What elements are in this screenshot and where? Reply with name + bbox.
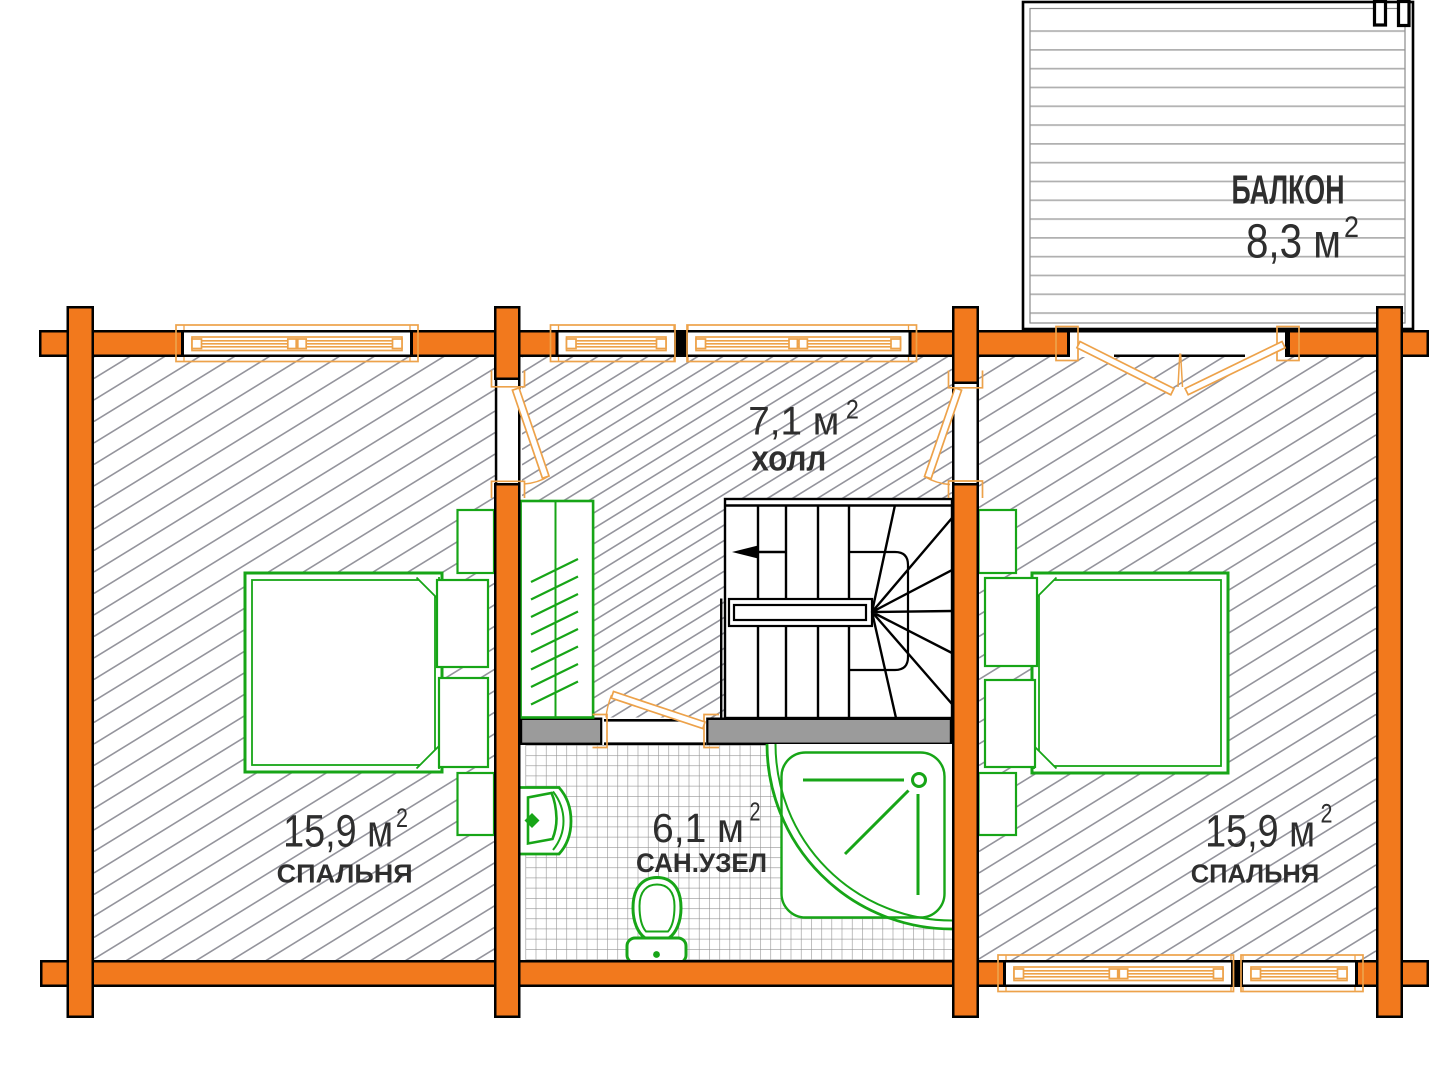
svg-text:СПАЛЬНЯ: СПАЛЬНЯ bbox=[1191, 858, 1320, 888]
svg-text:САН.УЗЕЛ: САН.УЗЕЛ bbox=[636, 848, 767, 878]
svg-text:15,9 м: 15,9 м bbox=[283, 806, 393, 857]
svg-text:6,1 м: 6,1 м bbox=[652, 805, 744, 851]
svg-text:2: 2 bbox=[750, 797, 761, 827]
svg-text:2: 2 bbox=[396, 803, 408, 833]
svg-text:2: 2 bbox=[846, 394, 859, 424]
svg-text:2: 2 bbox=[1321, 799, 1333, 829]
svg-text:8,3 м: 8,3 м bbox=[1246, 216, 1341, 269]
svg-text:15,9 м: 15,9 м bbox=[1205, 806, 1315, 857]
svg-text:БАЛКОН: БАЛКОН bbox=[1232, 167, 1345, 213]
svg-text:2: 2 bbox=[1344, 211, 1359, 244]
svg-text:холл: холл bbox=[751, 437, 826, 478]
svg-text:СПАЛЬНЯ: СПАЛЬНЯ bbox=[277, 858, 413, 888]
